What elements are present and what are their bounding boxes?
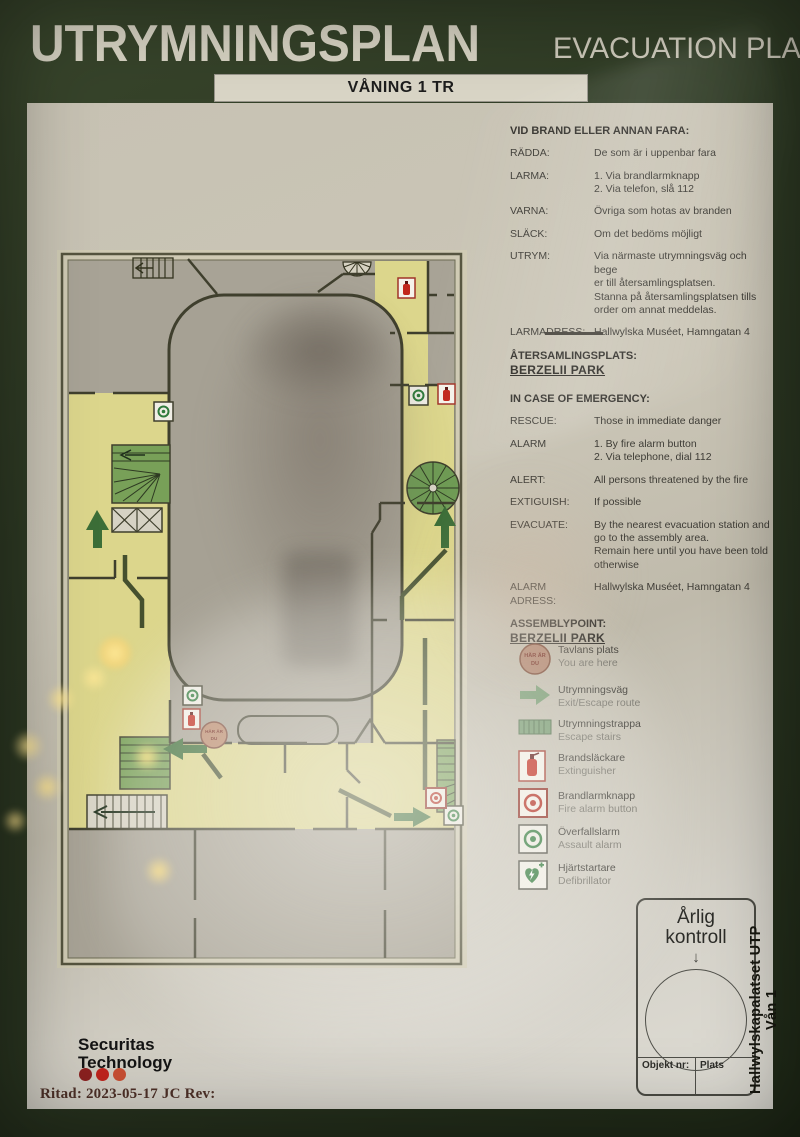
legend-label-sv: Brandlarmknapp (558, 790, 748, 803)
instruction-row: ALERT:All persons threatened by the fire (510, 474, 772, 487)
place-label: Plats (695, 1058, 754, 1094)
inspection-table: Objekt nr: Plats (638, 1057, 754, 1094)
instructions-column: VID BRAND ELLER ANNAN FARA: RÄDDA:De som… (510, 124, 772, 653)
you-are-here-marker: HÄR ÄR DU (201, 722, 227, 748)
assembly-point-sv: ÅTERSAMLINGSPLATS: BERZELII PARK (510, 349, 772, 378)
brand-line1: Securitas (78, 1036, 172, 1054)
reflection-light (2, 808, 28, 834)
instruction-text: Those in immediate danger (594, 415, 772, 428)
instruction-text: De som är i uppenbar fara (594, 147, 772, 160)
instruction-label: SLÄCK: (510, 228, 594, 241)
drawn-revision-line: Ritad: 2023-05-17 JC Rev: (40, 1086, 215, 1103)
object-number-label: Objekt nr: (638, 1058, 695, 1094)
legend-label-sv: Tavlans plats (558, 644, 748, 657)
svg-text:DU: DU (531, 661, 539, 667)
fire-alarm-button-icon (426, 788, 446, 808)
instruction-row: SLÄCK:Om det bedöms möjligt (510, 228, 772, 241)
inspection-title-line2: kontroll (638, 928, 754, 948)
assault-alarm-icon (518, 824, 558, 854)
english-heading: IN CASE OF EMERGENCY: (510, 392, 772, 406)
instruction-text: Via närmaste utrymningsväg och bege er t… (594, 250, 772, 317)
down-arrow-icon: ↓ (638, 950, 754, 965)
reception-desk (238, 716, 338, 744)
extinguisher-icon (518, 750, 558, 782)
instruction-row: EVACUATE:By the nearest evacuation stati… (510, 519, 772, 573)
swedish-heading: VID BRAND ELLER ANNAN FARA: (510, 124, 772, 138)
elevator (112, 508, 162, 532)
legend: HÄR ÄR DU Tavlans platsYou are here Utry… (518, 642, 748, 896)
inspection-title-line1: Årlig (638, 908, 754, 928)
instruction-text: By the nearest evacuation station and go… (594, 519, 772, 573)
assault-alarm-icon (154, 402, 173, 421)
title-english: EVACUATION PLAN (553, 32, 800, 66)
instruction-label: RESCUE: (510, 415, 594, 428)
escape-stairs-icon (518, 716, 558, 738)
legend-label-sv: Brandsläckare (558, 752, 748, 765)
legend-label-en: Defibrillator (558, 875, 748, 888)
instruction-text: All persons threatened by the fire (594, 474, 772, 487)
legend-item: UtrymningstrappaEscape stairs (518, 716, 748, 744)
instruction-text: Om det bedöms möjligt (594, 228, 772, 241)
instruction-label: UTRYM: (510, 250, 594, 317)
instruction-label: EVACUATE: (510, 519, 594, 573)
legend-label-en: Extinguisher (558, 765, 748, 778)
instruction-row: RESCUE:Those in immediate danger (510, 415, 772, 428)
securitas-dots-icon (79, 1068, 126, 1081)
extinguisher-icon (183, 709, 200, 729)
instruction-row: VARNA:Övriga som hotas av branden (510, 205, 772, 218)
legend-label-sv: Utrymningsväg (558, 684, 748, 697)
legend-label-en: Escape stairs (558, 731, 748, 744)
assault-alarm-icon (183, 686, 202, 705)
extinguisher-icon (438, 384, 455, 404)
legend-label-en: Assault alarm (558, 839, 748, 852)
escape-route-arrow-icon (518, 682, 558, 708)
assault-alarm-icon (409, 386, 428, 405)
legend-item: HÄR ÄR DU Tavlans platsYou are here (518, 642, 748, 676)
floor-label: VÅNING 1 TR (348, 79, 455, 97)
you-are-here-text2: DU (211, 736, 218, 741)
svg-text:HÄR ÄR: HÄR ÄR (524, 652, 545, 659)
legend-label-en: You are here (558, 657, 748, 670)
assembly-heading-en: ASSEMBLYPOINT: (510, 617, 772, 631)
legend-label-en: Fire alarm button (558, 803, 748, 816)
instruction-row: UTRYM:Via närmaste utrymningsväg och beg… (510, 250, 772, 317)
extinguisher-icon (398, 278, 415, 298)
instruction-label: ALARM ADRESS: (510, 581, 594, 608)
instruction-label: EXTIGUISH: (510, 496, 594, 509)
floor-plan: HÄR ÄR DU (57, 250, 467, 968)
legend-label-sv: Hjärtstartare (558, 862, 748, 875)
securitas-logo: Securitas Technology (78, 1036, 172, 1072)
spiral-stairs-right (407, 462, 459, 514)
instruction-text: 1. Via brandlarmknapp 2. Via telefon, sl… (594, 170, 772, 197)
instruction-label: ALARM (510, 438, 594, 465)
instruction-row: RÄDDA:De som är i uppenbar fara (510, 147, 772, 160)
fire-alarm-button-icon (518, 788, 558, 818)
instruction-label: LARMA: (510, 170, 594, 197)
you-are-here-text1: HÄR ÄR (205, 728, 224, 734)
legend-item: BrandlarmknappFire alarm button (518, 788, 748, 818)
defibrillator-icon (518, 860, 558, 890)
legend-item: UtrymningsvägExit/Escape route (518, 682, 748, 710)
inspection-box: Årlig kontroll ↓ Objekt nr: Plats (636, 898, 756, 1096)
legend-label-sv: Utrymningstrappa (558, 718, 748, 731)
instruction-row: LARMA:1. Via brandlarmknapp 2. Via telef… (510, 170, 772, 197)
instruction-text: If possible (594, 496, 772, 509)
instruction-label: VARNA: (510, 205, 594, 218)
floor-label-bar: VÅNING 1 TR (214, 74, 588, 102)
you-are-here-icon: HÄR ÄR DU (518, 642, 558, 676)
instruction-text: Hallwylska Muséet, Hamngatan 4 (594, 326, 772, 339)
instruction-text: Hallwylska Muséet, Hamngatan 4 (594, 581, 772, 608)
legend-item: ÖverfallslarmAssault alarm (518, 824, 748, 854)
assembly-heading-sv: ÅTERSAMLINGSPLATS: (510, 349, 772, 363)
instruction-row: ALARM ADRESS:Hallwylska Muséet, Hamngata… (510, 581, 772, 608)
side-vertical-label: Hallwylskapalatset UTP Vån 1 (748, 912, 772, 1108)
legend-item: BrandsläckareExtinguisher (518, 750, 748, 782)
escape-stairs-left (112, 445, 170, 503)
instruction-row: ALARM1. By fire alarm button 2. Via tele… (510, 438, 772, 465)
inspection-sticker-circle (645, 969, 747, 1071)
instruction-text: 1. By fire alarm button 2. Via telephone… (594, 438, 772, 465)
title-swedish: UTRYMNINGSPLAN (30, 14, 480, 74)
instruction-label: ALERT: (510, 474, 594, 487)
instruction-label: RÄDDA: (510, 147, 594, 160)
underline-mark (545, 332, 603, 335)
instruction-text: Övriga som hotas av branden (594, 205, 772, 218)
legend-item: HjärtstartareDefibrillator (518, 860, 748, 890)
rooms-top-right (428, 261, 454, 333)
assembly-value-sv: BERZELII PARK (510, 363, 772, 378)
legend-label-sv: Överfallslarm (558, 826, 748, 839)
courtyard (169, 295, 402, 700)
photo-of-evacuation-sign: { "header": { "title_sv": "UTRYMNINGSPLA… (0, 0, 800, 1137)
instruction-row: EXTIGUISH:If possible (510, 496, 772, 509)
legend-label-en: Exit/Escape route (558, 697, 748, 710)
